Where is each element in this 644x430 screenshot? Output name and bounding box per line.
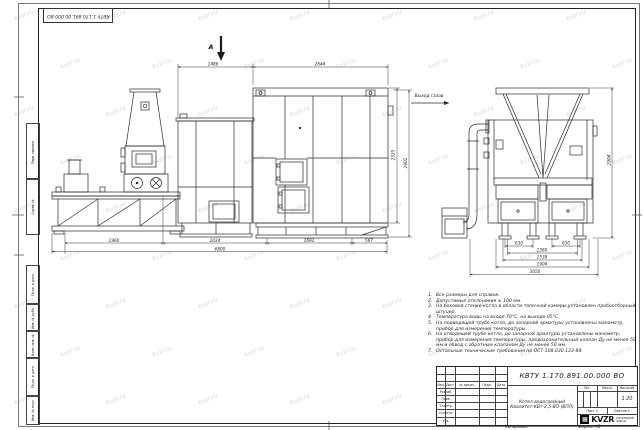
side-view xyxy=(442,88,597,239)
drawing-sheet: kvzr.rukvzr.rukvzr.rukvzr.rukvzr.rukvzr.… xyxy=(0,0,644,430)
note-item: 5.На подводящей трубе котла, до запорной… xyxy=(428,321,638,332)
tb-col-izm: Изм. xyxy=(437,381,445,388)
dim-front-bottom-3: 1692 xyxy=(304,238,315,243)
tb-col-podp: Подп. xyxy=(479,381,495,388)
dim-side-1360: 1360 xyxy=(537,248,548,253)
gas-outlet-label: Выход газов xyxy=(415,93,444,99)
kvzr-logo-icon: ▦ xyxy=(580,415,589,424)
tb-col-list: Лист xyxy=(445,381,455,388)
note-item: 7.Остальные технические требования по ОС… xyxy=(428,349,638,355)
dim-front-height-inner: 2335 xyxy=(391,149,396,160)
tb-sheet: Лист 1 xyxy=(577,407,607,414)
tb-col-data: Дата xyxy=(495,381,507,388)
tb-lit-label: Лит. xyxy=(577,385,597,391)
tb-row-prov: Пров. xyxy=(437,395,455,402)
tb-col-dokum: № докум. xyxy=(455,381,479,388)
kvzr-logo-tagline: КОТЕЛЬНЫЙ ЗАВОД xyxy=(616,417,634,423)
tb-scale-value: 1:20 xyxy=(617,391,637,407)
tb-row-tkontr: Т.контр. xyxy=(437,402,455,409)
tb-sheets: Листов 1 xyxy=(607,407,637,414)
dimension-labels: 1486 2644 2335 2902 1960 2034 1692 567 6… xyxy=(109,62,612,275)
tb-mass-label: Масса xyxy=(597,385,617,391)
dim-side-height: 2904 xyxy=(607,154,612,165)
note-item: 3.На боковой стенке котла в области топо… xyxy=(428,304,638,315)
title-block: Изм. Лист № докум. Подп. Дата Разраб. Пр… xyxy=(436,366,638,426)
section-arrow-label: А xyxy=(207,43,213,51)
dim-side-1538: 1538 xyxy=(537,255,548,260)
dim-side-1904: 1904 xyxy=(537,262,548,267)
dim-side-630-left: 630 xyxy=(515,241,523,246)
dim-front-bottom-1: 1960 xyxy=(109,238,120,243)
dim-side-total: 3050 xyxy=(530,269,541,274)
tb-product-name-line2: Квалитет-КВт-2,5-ВО-(ВПЛ) xyxy=(510,405,573,411)
kvzr-logo-word: KVZR xyxy=(591,415,614,424)
dim-side-630-right: 630 xyxy=(562,241,570,246)
tb-doc-number: КВТУ 1.170.891.00.000 ВО xyxy=(507,367,637,385)
dim-front-height-outer: 2902 xyxy=(403,157,408,168)
dim-front-bottom-2: 2034 xyxy=(210,238,221,243)
footer-format: Формат А2 xyxy=(578,424,601,429)
dim-front-top-left: 1486 xyxy=(208,62,219,67)
tb-row-nkontr: Н.контр. xyxy=(437,409,455,417)
dim-front-top-right: 2644 xyxy=(315,62,326,67)
note-item: 6.На отводящей трубе котла, до запорной … xyxy=(428,332,638,349)
tb-row-utv: Утв. xyxy=(437,417,455,425)
section-arrow: А xyxy=(207,36,225,61)
technical-notes: 1.Все размеры для справок. 2.Допустимые … xyxy=(428,293,638,355)
dim-front-bottom-4: 567 xyxy=(365,238,373,243)
front-view xyxy=(52,88,393,238)
dim-front-total: 6800 xyxy=(215,246,226,251)
tb-row-razrab: Разраб. xyxy=(437,388,455,395)
gas-outlet-callout: Выход газов xyxy=(411,93,450,105)
tb-product-name: Котел водогрейный Квалитет-КВт-2,5-ВО-(В… xyxy=(507,385,577,425)
footer-kopiroval: Копировал xyxy=(505,424,528,429)
